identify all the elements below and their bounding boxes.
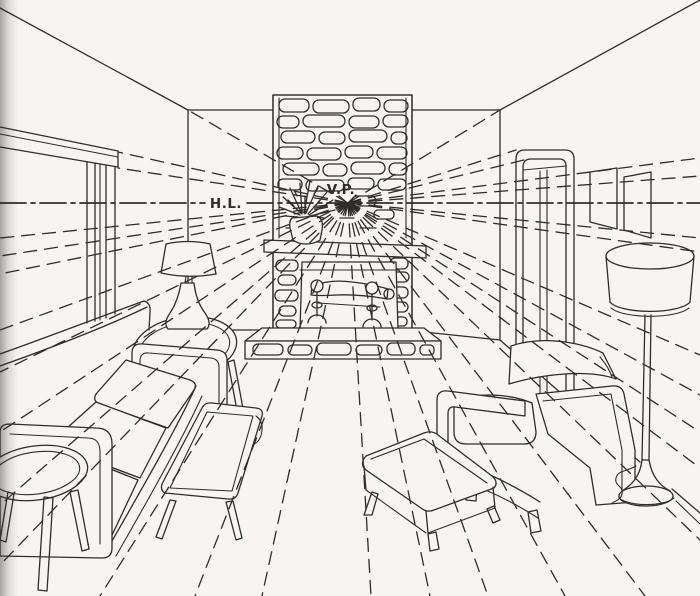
- bench-leg: [226, 501, 242, 540]
- hearth-top: [245, 328, 441, 341]
- table-lamp-base: [166, 283, 209, 329]
- line-art-canvas: H.L. V.P.: [0, 0, 700, 596]
- armchair: [437, 341, 635, 533]
- perspective-drawing: H.L. V.P.: [0, 0, 700, 596]
- ottoman-leg: [428, 532, 439, 551]
- picture-frame: [590, 168, 617, 229]
- armchair-back-cushion: [509, 341, 616, 384]
- horizon-label: H.L.: [210, 196, 242, 212]
- bench-leg: [156, 500, 176, 539]
- sofa-back-top: [0, 301, 144, 354]
- ottoman: [363, 432, 501, 551]
- vanishing-point-label: V.P.: [327, 182, 355, 198]
- floor-lamp-pole: [642, 315, 645, 460]
